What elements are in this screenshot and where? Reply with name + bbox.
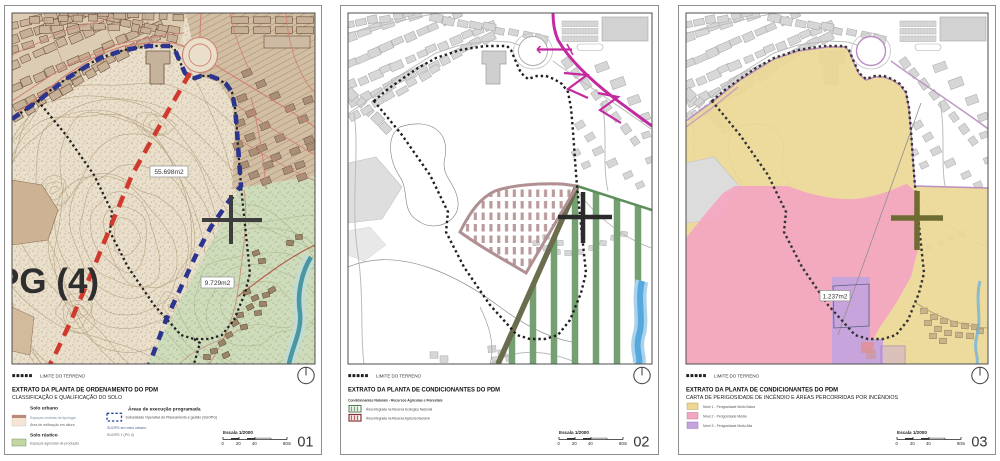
- svg-text:20: 20: [572, 441, 577, 446]
- svg-text:SUOPG 1 (PG 4): SUOPG 1 (PG 4): [107, 433, 134, 437]
- svg-text:9.729m2: 9.729m2: [205, 280, 231, 287]
- svg-text:20: 20: [236, 441, 241, 446]
- svg-text:55.698m2: 55.698m2: [154, 169, 184, 176]
- svg-text:LIMITE DO TERRENO: LIMITE DO TERRENO: [376, 374, 421, 379]
- svg-text:40: 40: [252, 441, 257, 446]
- svg-text:CLASSIFICAÇÃO E QUALIFICAÇÃO D: CLASSIFICAÇÃO E QUALIFICAÇÃO DO SOLO: [12, 394, 122, 401]
- svg-text:Nível 3 - Perigosidade Muito A: Nível 3 - Perigosidade Muito Alta: [703, 424, 752, 428]
- svg-text:1.237m2: 1.237m2: [823, 294, 848, 301]
- svg-text:Solo urbano: Solo urbano: [30, 406, 58, 412]
- svg-text:Área de edificação em altura: Área de edificação em altura: [30, 423, 75, 427]
- svg-text:LIMITE DO TERRENO: LIMITE DO TERRENO: [714, 374, 759, 379]
- svg-text:Nível 2 - Perigosidade Média: Nível 2 - Perigosidade Média: [703, 415, 747, 419]
- svg-text:40: 40: [588, 441, 593, 446]
- svg-text:02: 02: [633, 435, 649, 451]
- svg-text:EXTRATO DA PLANTA DE CONDICION: EXTRATO DA PLANTA DE CONDICIONANTES DO P…: [348, 387, 500, 394]
- svg-text:40: 40: [926, 441, 931, 446]
- svg-text:01: 01: [297, 435, 313, 451]
- svg-text:03: 03: [971, 435, 987, 451]
- svg-text:Áreas de execução programada: Áreas de execução programada: [128, 406, 201, 413]
- svg-text:Área integrada na Reserva Agrí: Área integrada na Reserva Agrícola Nacio…: [366, 417, 430, 421]
- svg-text:Subunidade Operativa de Planea: Subunidade Operativa de Planeamento e ge…: [126, 416, 218, 420]
- svg-text:CARTA DE PERIGOSIDADE DE INCÊN: CARTA DE PERIGOSIDADE DE INCÊNDIO E ÁREA…: [686, 393, 898, 401]
- svg-text:80m: 80m: [619, 441, 628, 446]
- svg-text:Área integrada na Reserva Ecol: Área integrada na Reserva Ecológica Naci…: [366, 408, 432, 412]
- svg-text:Escala 1/2000: Escala 1/2000: [897, 430, 927, 435]
- svg-text:Espaços centrais de tipologia: Espaços centrais de tipologia: [30, 416, 76, 420]
- svg-text:EXTRATO DA PLANTA DE ORDENAMEN: EXTRATO DA PLANTA DE ORDENAMENTO DO PDM: [12, 387, 158, 394]
- svg-text:Escala 1/2000: Escala 1/2000: [223, 430, 253, 435]
- svg-text:EXTRATO DA PLANTA DE CONDICION: EXTRATO DA PLANTA DE CONDICIONANTES DO P…: [686, 387, 838, 394]
- svg-text:PG (4): PG (4): [4, 262, 99, 301]
- svg-text:20: 20: [910, 441, 915, 446]
- svg-text:80m: 80m: [283, 441, 292, 446]
- svg-text:Nível 1 - Perigosidade Muito B: Nível 1 - Perigosidade Muito Baixa: [703, 405, 755, 409]
- svg-text:Escala 1/2000: Escala 1/2000: [559, 430, 589, 435]
- svg-text:Solo rústico: Solo rústico: [30, 433, 58, 439]
- svg-text:Espaços agrícolas de produção: Espaços agrícolas de produção: [30, 442, 79, 446]
- svg-text:LIMITE DO TERRENO: LIMITE DO TERRENO: [40, 374, 85, 379]
- svg-text:80m: 80m: [957, 441, 966, 446]
- svg-text:Condicionantes Naturais - Recu: Condicionantes Naturais - Recursos Agríc…: [348, 399, 443, 403]
- svg-text:SUOPG em meio urbano: SUOPG em meio urbano: [107, 426, 146, 430]
